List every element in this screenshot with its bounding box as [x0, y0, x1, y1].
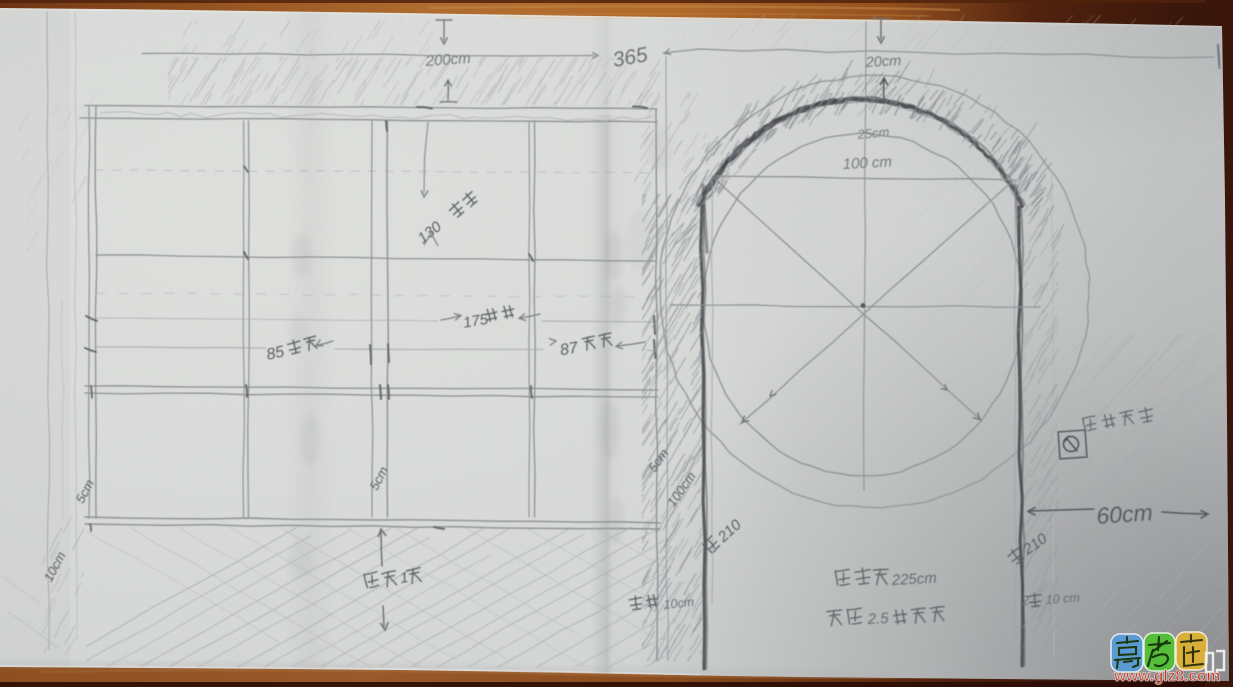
- svg-text:20cm: 20cm: [864, 53, 901, 71]
- svg-text:10 cm: 10 cm: [1045, 591, 1080, 607]
- svg-text:2.5: 2.5: [866, 610, 889, 628]
- svg-text:www.glz8.com: www.glz8.com: [1113, 668, 1220, 685]
- svg-text:25cm: 25cm: [856, 124, 890, 142]
- svg-text:100 cm: 100 cm: [842, 153, 892, 173]
- svg-text:85: 85: [265, 343, 286, 363]
- svg-text:225cm: 225cm: [890, 570, 937, 589]
- svg-text:60cm: 60cm: [1096, 499, 1154, 529]
- svg-text:200cm: 200cm: [424, 50, 471, 70]
